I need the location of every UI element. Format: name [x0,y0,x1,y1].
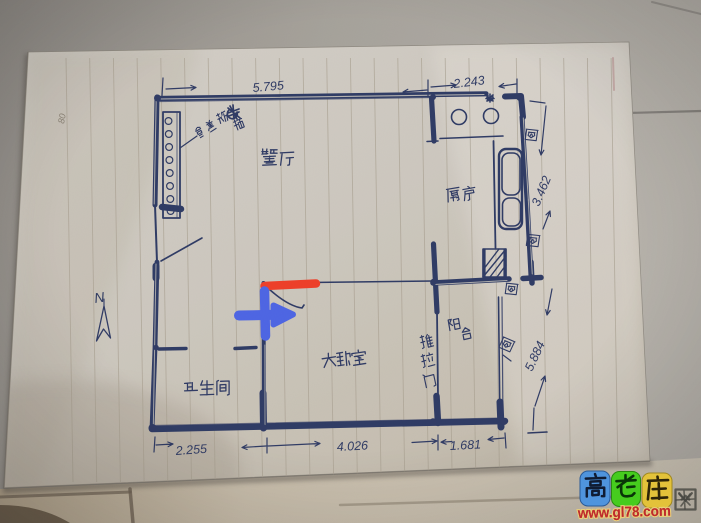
svg-text:www.gl78.com: www.gl78.com [577,504,671,522]
